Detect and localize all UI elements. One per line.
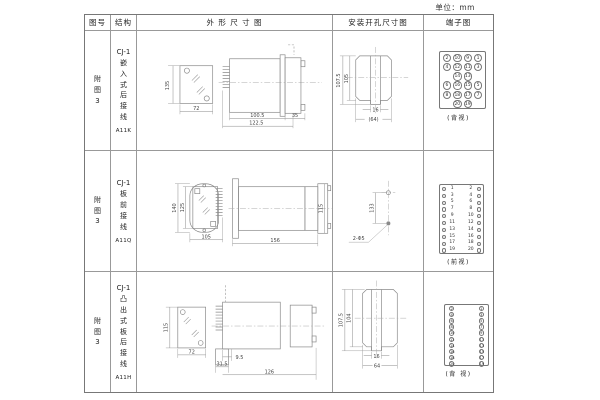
- dim-side-height-r2: 115: [318, 204, 324, 213]
- terminal-row: 1112: [440, 220, 483, 227]
- terminal-pin: 4: [443, 63, 451, 71]
- terminal-pin: 12: [449, 337, 454, 342]
- dim-cutout-width-r1: (64): [368, 117, 378, 123]
- terminal-row: 2019: [445, 361, 488, 367]
- terminal-pin: 15: [479, 349, 484, 354]
- dim-cutout-width-r3: 64: [374, 364, 380, 370]
- terminal-pin: 4: [449, 312, 454, 317]
- terminal-box-r3: 2143658710912111413161518172019: [444, 304, 489, 366]
- mounting-cell-r2: 133 2-Φ5: [333, 151, 424, 272]
- terminal-cell-r2: 1234567891011121314151617181920 (前视): [424, 151, 493, 272]
- terminal-pin: 9: [479, 330, 484, 335]
- outline-drawing-r1: 135 72 100.5 35: [137, 31, 332, 150]
- mounting-drawing-r3: 107.5 104 16 64: [333, 272, 423, 392]
- terminal-pin-circle: [477, 248, 481, 252]
- terminal-pin: 18: [453, 91, 461, 99]
- header-outline: 外 形 尺 寸 图: [137, 15, 333, 31]
- terminal-pin: 13: [479, 343, 484, 348]
- structure-cell-r2: CJ-1 板 前 接 线 A11Q: [111, 151, 137, 272]
- terminal-pin-number: 6: [465, 200, 477, 205]
- terminal-pin: 19: [479, 361, 484, 366]
- terminal-pin: 17: [464, 91, 472, 99]
- model-code-r3: A11H: [115, 375, 131, 381]
- terminal-pin: 11: [464, 63, 472, 71]
- terminal-grid-r1: 2109141211314136161558181772019: [440, 54, 485, 108]
- fig-no-text-r2: 附 图 3: [94, 195, 101, 228]
- terminal-pin-circle: [477, 207, 481, 211]
- terminal-pin: 16: [449, 349, 454, 354]
- terminal-pin: 16: [453, 81, 461, 89]
- dim-side-3-r3: 126: [265, 369, 274, 375]
- terminal-row: 1314: [440, 227, 483, 234]
- terminal-pin-circle: [477, 187, 481, 191]
- header-terminal: 端子图: [424, 15, 493, 31]
- terminal-pin-circle: [477, 214, 481, 218]
- terminal-pin: 19: [464, 100, 472, 108]
- dim-front-height-r3: 115: [163, 323, 169, 332]
- terminal-pin: 2: [443, 54, 451, 62]
- terminal-pin: 18: [449, 355, 454, 360]
- terminal-row: 818177: [440, 91, 485, 99]
- terminal-pin: 3: [479, 312, 484, 317]
- terminal-pin-number: 1: [446, 187, 458, 192]
- terminal-row: 910: [440, 213, 483, 220]
- terminal-row: 1413: [440, 72, 485, 80]
- terminal-pin: 8: [443, 91, 451, 99]
- spec-table: 图号 结构 外 形 尺 寸 图 安装开孔尺寸图 端子图 附 图 3 CJ-1 嵌…: [84, 14, 494, 393]
- mounting-drawing-r1: 107.5 105 16 (64): [333, 31, 423, 150]
- terminal-pin: 10: [453, 54, 461, 62]
- terminal-pin-number: 11: [446, 221, 458, 226]
- terminal-row: 56: [440, 199, 483, 206]
- fig-no-text-r1: 附 图 3: [94, 74, 101, 107]
- terminal-row: 1920: [440, 247, 483, 254]
- terminal-pin-number: 16: [465, 235, 477, 240]
- dim-cutout-outer-r1: 107.5: [336, 74, 342, 88]
- fig-no-cell-r1: 附 图 3: [85, 31, 111, 151]
- terminal-row: 1516: [440, 233, 483, 240]
- terminal-pin: 14: [449, 343, 454, 348]
- model-code-r1: A11K: [116, 128, 132, 134]
- terminal-grid-r3: 2143658710912111413161518172019: [445, 306, 488, 367]
- unit-note: 单位：mm: [400, 2, 475, 13]
- terminal-pin-number: 4: [465, 194, 477, 199]
- fig-no-cell-r2: 附 图 3: [85, 151, 111, 272]
- dim-cutout-outer-r3: 107.5: [338, 313, 344, 327]
- terminal-pin: 15: [464, 81, 472, 89]
- outline-cell-r2: 140 125 105 156: [137, 151, 333, 272]
- terminal-pin: 8: [449, 324, 454, 329]
- dim-cutout-inner-r3: 104: [346, 313, 352, 322]
- terminal-row: 12: [440, 186, 483, 193]
- terminal-pin: 9: [464, 54, 472, 62]
- terminal-pin: 12: [453, 63, 461, 71]
- terminal-pin-circle: [477, 242, 481, 246]
- dim-cutout-notch-r3: 16: [373, 354, 379, 360]
- dim-side-2-r1: 122.5: [249, 121, 263, 127]
- terminal-pin: 3: [474, 63, 482, 71]
- terminal-pin: 1: [474, 54, 482, 62]
- terminal-pin-number: 5: [446, 200, 458, 205]
- terminal-grid-r2: 1234567891011121314151617181920: [440, 186, 483, 254]
- dim-cutout-notch-r1: 16: [372, 108, 378, 114]
- structure-text-r3: CJ-1 凸 出 式 板 后 接 线: [117, 283, 131, 370]
- terminal-pin: 5: [474, 81, 482, 89]
- dim-hole-distance-r2: 133: [370, 203, 376, 212]
- terminal-row: 412113: [440, 63, 485, 71]
- terminal-row: 34: [440, 192, 483, 199]
- mounting-cell-r1: 107.5 105 16 (64): [333, 31, 424, 151]
- terminal-row: 1718: [440, 240, 483, 247]
- terminal-row: 21091: [440, 54, 485, 62]
- terminal-row: 2019: [440, 100, 485, 108]
- terminal-pin: 13: [464, 72, 472, 80]
- dim-front-height2-r2: 125: [180, 203, 186, 212]
- terminal-pin-circle: [477, 221, 481, 225]
- terminal-row: 78: [440, 206, 483, 213]
- outline-cell-r1: 135 72 100.5 35: [137, 31, 333, 151]
- terminal-pin-number: 10: [465, 214, 477, 219]
- dim-front-width-r2: 105: [202, 234, 211, 240]
- dim-front-height-r1: 135: [165, 81, 171, 90]
- mounting-drawing-r2: 133 2-Φ5: [333, 151, 423, 271]
- terminal-pin-circle: [477, 194, 481, 198]
- dim-front-width-r1: 72: [193, 106, 199, 112]
- terminal-view-label-r1: (背视): [424, 113, 493, 122]
- header-mounting: 安装开孔尺寸图: [333, 15, 424, 31]
- terminal-pin-number: 18: [465, 241, 477, 246]
- terminal-pin-number: 12: [465, 221, 477, 226]
- terminal-pin-number: 15: [446, 235, 458, 240]
- outline-cell-r3: 115 72 9.5 31.5: [137, 272, 333, 392]
- terminal-pin-number: 17: [446, 241, 458, 246]
- terminal-pin-number: 14: [465, 228, 477, 233]
- terminal-pin: 17: [479, 355, 484, 360]
- terminal-pin: 1: [479, 306, 484, 311]
- terminal-pin-number: 3: [446, 194, 458, 199]
- fig-no-cell-r3: 附 图 3: [85, 272, 111, 392]
- terminal-pin: 14: [453, 72, 461, 80]
- terminal-pin: 11: [479, 337, 484, 342]
- terminal-pin: 6: [449, 318, 454, 323]
- dim-hole-spec-r2: 2-Φ5: [353, 236, 365, 242]
- header-structure: 结构: [111, 15, 137, 31]
- terminal-pin-number: 9: [446, 214, 458, 219]
- structure-cell-r3: CJ-1 凸 出 式 板 后 接 线 A11H: [111, 272, 137, 392]
- terminal-pin: 7: [474, 91, 482, 99]
- terminal-pin: 2: [449, 306, 454, 311]
- terminal-pin-number: 13: [446, 228, 458, 233]
- terminal-pin: 5: [479, 318, 484, 323]
- terminal-pin-number: 20: [465, 248, 477, 253]
- terminal-view-label-r3: (背 视): [424, 369, 493, 378]
- terminal-pin: 10: [449, 330, 454, 335]
- model-code-r2: A11Q: [115, 238, 131, 244]
- terminal-pin-number: 8: [465, 207, 477, 212]
- terminal-box-r2: 1234567891011121314151617181920: [439, 184, 484, 254]
- terminal-pin-circle: [477, 235, 481, 239]
- structure-cell-r1: CJ-1 嵌 入 式 后 接 线 A11K: [111, 31, 137, 151]
- header-fig-no: 图号: [85, 15, 111, 31]
- terminal-box-r1: 2109141211314136161558181772019: [439, 51, 486, 109]
- terminal-cell-r3: 2143658710912111413161518172019 (背 视): [424, 272, 493, 392]
- terminal-view-label-r2: (前视): [424, 257, 493, 266]
- dim-side-1-r1: 100.5: [250, 113, 264, 119]
- terminal-pin: 7: [479, 324, 484, 329]
- dim-cutout-inner-r1: 105: [344, 74, 350, 83]
- terminal-pin: 6: [443, 81, 451, 89]
- fig-no-text-r3: 附 图 3: [94, 316, 101, 349]
- terminal-pin: 20: [453, 100, 461, 108]
- terminal-cell-r1: 2109141211314136161558181772019 (背视): [424, 31, 493, 151]
- dim-side-2-r3: 31.5: [217, 361, 228, 367]
- spec-sheet-page: 单位：mm 图号 结构 外 形 尺 寸 图 安装开孔尺寸图 端子图 附 图 3 …: [0, 0, 600, 400]
- dim-front-width-r3: 72: [189, 349, 195, 355]
- terminal-pin: 20: [449, 361, 454, 366]
- terminal-pin-number: 2: [465, 187, 477, 192]
- outline-drawing-r2: 140 125 105 156: [137, 151, 332, 271]
- structure-text-r1: CJ-1 嵌 入 式 后 接 线: [117, 47, 131, 123]
- mounting-cell-r3: 107.5 104 16 64: [333, 272, 424, 392]
- dim-side-length-r2: 156: [270, 238, 279, 244]
- terminal-pin-number: 19: [446, 248, 458, 253]
- terminal-pin-circle: [477, 228, 481, 232]
- dim-side-1-r3: 9.5: [236, 355, 244, 361]
- terminal-pin-number: 7: [446, 207, 458, 212]
- structure-text-r2: CJ-1 板 前 接 线: [117, 178, 131, 232]
- dim-front-height-r2: 140: [172, 203, 178, 212]
- outline-drawing-r3: 115 72 9.5 31.5: [137, 272, 332, 392]
- terminal-pin-circle: [477, 201, 481, 205]
- terminal-row: 616155: [440, 81, 485, 89]
